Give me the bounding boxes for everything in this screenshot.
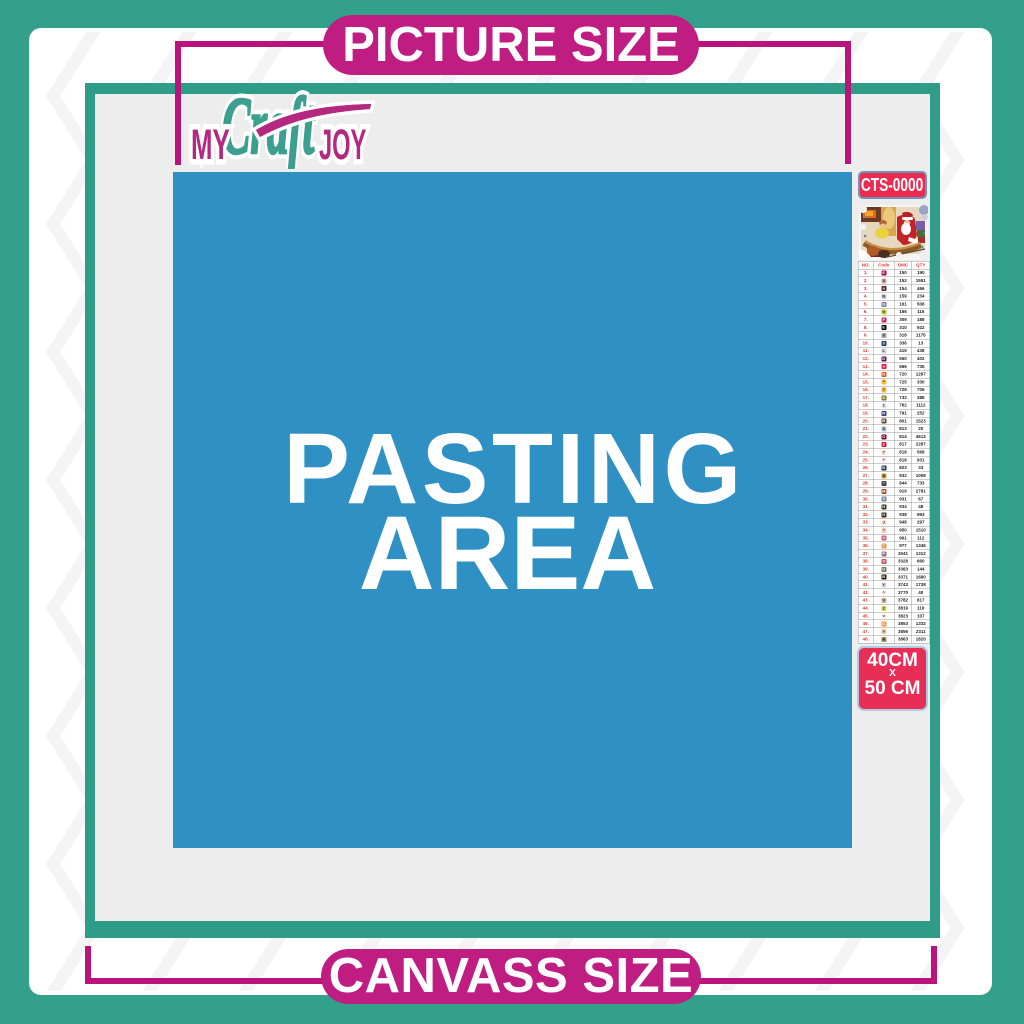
svg-text:MY: MY — [191, 120, 230, 169]
svg-text:JOY: JOY — [319, 122, 366, 169]
